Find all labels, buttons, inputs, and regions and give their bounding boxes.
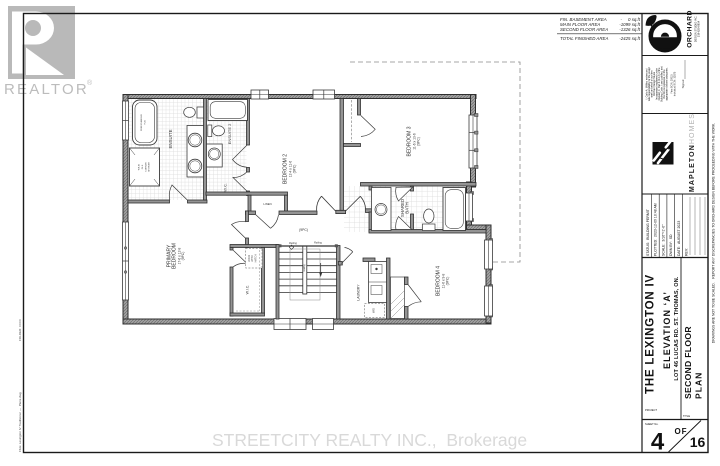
- svg-text:BATH: BATH: [405, 202, 410, 213]
- svg-text:W.I.C.: W.I.C.: [224, 183, 228, 192]
- svg-text:FILE: Lexington IV Traditiona: FILE: Lexington IV Traditional — Plans.d…: [18, 392, 22, 452]
- svg-text:(9PC): (9PC): [416, 137, 420, 146]
- svg-text:appropriate classes/categorie: appropriate classes/categories.: [666, 67, 669, 100]
- svg-text:TITLE: TITLE: [683, 414, 690, 418]
- svg-text:4: 4: [651, 429, 665, 456]
- svg-text:DATE: AUGUST 2023: DATE: AUGUST 2023: [677, 221, 681, 256]
- svg-text:MAPLETONHOMES: MAPLETONHOMES: [689, 113, 696, 192]
- svg-text:PROJECT: PROJECT: [645, 408, 658, 412]
- svg-text:W/D: W/D: [372, 308, 376, 313]
- svg-text:REV:: REV:: [685, 246, 689, 256]
- svg-text:(9PC): (9PC): [292, 165, 296, 174]
- svg-text:FOLDER: XXXX: FOLDER: XXXX: [18, 319, 22, 341]
- svg-text:DWN BY: SD: DWN BY: SD: [669, 234, 673, 256]
- svg-text:THE LEXINGTON IV: THE LEXINGTON IV: [645, 274, 657, 394]
- svg-text:HATCH: HATCH: [254, 254, 257, 262]
- svg-text:PLAN: PLAN: [694, 372, 704, 399]
- svg-text:PLOTTED: 2023-12-09 10:48 AM: PLOTTED: 2023-12-09 10:48 AM: [654, 203, 658, 256]
- svg-text:519-620-0814: 519-620-0814: [697, 20, 701, 37]
- svg-text:Railing: Railing: [303, 264, 306, 272]
- svg-text:LAUNDRY: LAUNDRY: [357, 284, 361, 301]
- svg-text:LINEN: LINEN: [263, 202, 271, 206]
- svg-text:CORNER: CORNER: [145, 162, 147, 172]
- svg-text:-2425 sq.ft: -2425 sq.ft: [619, 36, 641, 41]
- svg-text:-1326 sq.ft: -1326 sq.ft: [619, 27, 641, 32]
- svg-text:SCALE: 3/16"=1'-0": SCALE: 3/16"=1'-0": [661, 224, 665, 256]
- svg-text:16: 16: [690, 434, 706, 450]
- svg-text:(9PC): (9PC): [181, 252, 185, 261]
- svg-text:OF: OF: [674, 427, 687, 436]
- svg-text:STATUS: BUILDING PERMIT: STATUS: BUILDING PERMIT: [646, 208, 650, 256]
- svg-text:SHOWER: SHOWER: [149, 162, 151, 172]
- svg-text:SECOND FLOOR: SECOND FLOOR: [683, 326, 693, 399]
- svg-text:Railing: Railing: [314, 241, 322, 245]
- svg-text:(9PC): (9PC): [299, 228, 308, 232]
- svg-text:DRAWINGS ARE NOT TO BE SCALED.: DRAWINGS ARE NOT TO BE SCALED. REPORT AN…: [712, 123, 716, 343]
- svg-text:ENSUITE 2: ENSUITE 2: [227, 123, 232, 144]
- svg-text:Individual BCIN: 32875: Individual BCIN: 32875: [674, 71, 677, 96]
- svg-text:Railing: Railing: [289, 241, 297, 245]
- svg-text:Signed: Signed: [681, 79, 685, 88]
- svg-text:LOT 46 LUCAS RD. ST. THOMAS, O: LOT 46 LUCAS RD. ST. THOMAS, ON.: [674, 276, 680, 380]
- svg-text:®: ®: [87, 79, 93, 87]
- svg-text:GLS: GLS: [142, 164, 144, 169]
- svg-text:STREETCITY REALTY INC., Broke: STREETCITY REALTY INC., Brokerage: [212, 430, 527, 450]
- svg-text:SECOND FLOOR AREA: SECOND FLOOR AREA: [560, 27, 608, 32]
- svg-text:TOTAL FINISHED AREA: TOTAL FINISHED AREA: [560, 36, 608, 41]
- svg-text:W.I.C.: W.I.C.: [246, 285, 250, 295]
- svg-text:TUB: TUB: [145, 120, 147, 125]
- svg-text:REALTOR: REALTOR: [4, 81, 89, 98]
- svg-text:SHEET No.: SHEET No.: [645, 422, 659, 426]
- svg-text:ELEVATION ‘A’: ELEVATION ‘A’: [662, 291, 672, 369]
- svg-text:FREESTANDING: FREESTANDING: [140, 114, 143, 131]
- svg-text:ORCHARD: ORCHARD: [687, 10, 694, 48]
- svg-text:ENSUITE: ENSUITE: [168, 129, 173, 148]
- svg-text:(9PC): (9PC): [445, 277, 449, 286]
- svg-text:WK-IN: WK-IN: [139, 163, 141, 170]
